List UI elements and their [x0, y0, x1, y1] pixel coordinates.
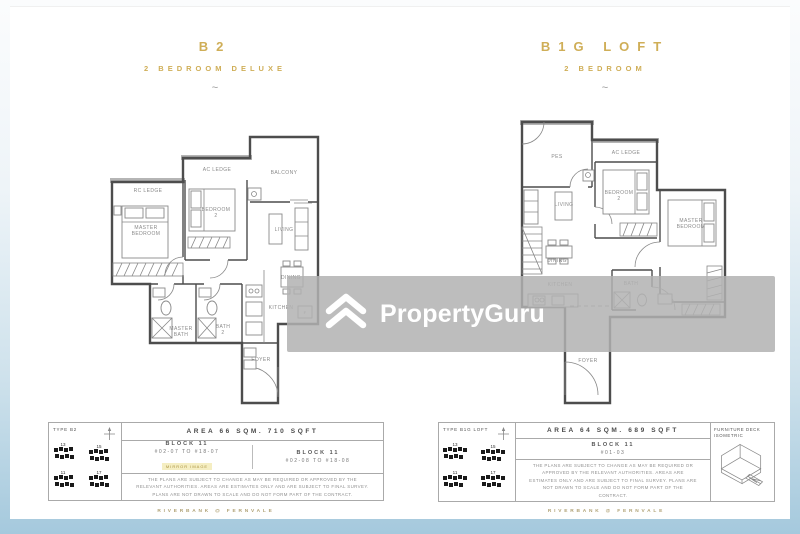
b1g-label-dining: DINING: [547, 258, 567, 264]
b2-label-bath2-2: 2: [221, 330, 224, 336]
b1g-site-number-2: 15: [490, 444, 496, 449]
furniture-deck-isometric-drawing: [714, 477, 770, 494]
b2-block-2-name: BLOCK 11: [253, 450, 383, 456]
floorplan-b1g-loft: PES AC LEDGE BEDROOM 2 LIVING MASTER BED…: [500, 112, 780, 417]
b1g-disclaimer: THE PLANS ARE SUBJECT TO CHANGE AS MAY B…: [516, 460, 710, 501]
watermark-band: PropertyGuru: [287, 276, 775, 352]
b2-label-ac-ledge: AC LEDGE: [203, 167, 232, 173]
watermark-text: PropertyGuru: [380, 300, 545, 329]
b1g-type-label: TYPE B1G LOFT: [443, 427, 488, 432]
b1g-block-1-range: #01-03: [516, 450, 710, 456]
unit-b1g-separator: ~: [430, 82, 780, 94]
b2-label-living: LIVING: [275, 227, 294, 233]
b2-siteplan-clusters: 13 15 11 17: [51, 439, 119, 502]
b1g-siteplan-cell: TYPE B1G LOFT 13 15 11: [439, 423, 516, 501]
b2-label-rc-ledge: RC LEDGE: [134, 188, 163, 194]
brochure-page: B2 2 BEDROOM DELUXE ~ B1G LOFT 2 BEDROOM…: [10, 6, 790, 519]
propertyguru-logo-icon: [323, 291, 369, 338]
b2-site-number-4: 17: [96, 470, 102, 475]
b2-block-2: BLOCK 11 #02-08 TO #18-08: [253, 450, 383, 464]
b2-info-main: AREA 66 SQM. 710 SQFT BLOCK 11 #02-07 TO…: [122, 423, 383, 500]
infobox-b1g: TYPE B1G LOFT 13 15 11: [438, 422, 775, 502]
b2-disclaimer: THE PLANS ARE SUBJECT TO CHANGE AS MAY B…: [122, 474, 383, 500]
unit-b1g-subtitle: 2 BEDROOM: [430, 64, 780, 73]
b2-site-number-1: 13: [60, 442, 66, 447]
b1g-area-label: AREA 64 SQM. 689 SQFT: [516, 423, 710, 439]
b2-label-foyer: FOYER: [251, 357, 270, 363]
unit-b2-header: B2 2 BEDROOM DELUXE ~: [40, 39, 390, 94]
unit-b2-separator: ~: [40, 82, 390, 94]
b2-area-label: AREA 66 SQM. 710 SQFT: [122, 423, 383, 441]
b2-label-masterbath-2: BATH: [174, 332, 189, 338]
b1g-block-1: BLOCK 11 #01-03: [516, 442, 710, 456]
b2-type-label: TYPE B2: [53, 427, 77, 432]
unit-b2-title: B2: [40, 39, 390, 54]
b2-block-2-range: #02-08 TO #18-08: [253, 458, 383, 464]
b1g-site-number-1: 13: [452, 442, 458, 447]
b2-mirror-image-tag: MIRROR IMAGE: [162, 463, 212, 470]
b2-site-number-2: 15: [96, 444, 102, 449]
project-name-left: RIVERBANK @ FERNVALE: [48, 509, 384, 514]
b1g-stairs: [522, 227, 542, 274]
b1g-label-bedroom2-2: 2: [617, 196, 620, 202]
unit-b2-subtitle: 2 BEDROOM DELUXE: [40, 64, 390, 73]
b2-siteplan-cell: TYPE B2 13 15 11: [49, 423, 122, 500]
b2-block-1: BLOCK 11 #02-07 TO #18-07 MIRROR IMAGE: [122, 441, 252, 473]
b2-blocks-row: BLOCK 11 #02-07 TO #18-07 MIRROR IMAGE B…: [122, 441, 383, 474]
floorplan-b2: RC LEDGE AC LEDGE BALCONY MASTER BEDROOM…: [50, 112, 320, 417]
b1g-label-pes: PES: [551, 154, 562, 160]
infobox-b2: TYPE B2 13 15 11: [48, 422, 384, 501]
b2-block-1-name: BLOCK 11: [122, 441, 252, 447]
b1g-label-master-2: BEDROOM: [677, 224, 706, 230]
b1g-label-living: LIVING: [555, 202, 574, 208]
b1g-info-main: AREA 64 SQM. 689 SQFT BLOCK 11 #01-03 TH…: [516, 423, 710, 501]
b2-label-bedroom2-2: 2: [214, 213, 217, 219]
b1g-siteplan-clusters: 13 15 11 17: [441, 439, 513, 502]
b1g-label-ac-ledge: AC LEDGE: [612, 150, 641, 156]
b1g-doors: [522, 122, 675, 395]
b2-label-balcony: BALCONY: [271, 170, 298, 176]
b1g-blocks-row: BLOCK 11 #01-03: [516, 439, 710, 459]
furniture-deck-cell: FURNITURE DECK ISOMETRIC: [710, 423, 774, 501]
b1g-label-foyer: FOYER: [578, 358, 597, 364]
b1g-site-number-4: 17: [490, 470, 496, 475]
b2-block-1-range: #02-07 TO #18-07: [122, 449, 252, 455]
b1g-site-number-3: 11: [453, 470, 458, 475]
b2-site-number-3: 11: [61, 470, 66, 475]
project-name-right: RIVERBANK @ FERNVALE: [438, 509, 775, 514]
unit-b1g-header: B1G LOFT 2 BEDROOM ~: [430, 39, 780, 94]
b1g-block-1-name: BLOCK 11: [516, 442, 710, 448]
unit-b1g-title: B1G LOFT: [430, 39, 780, 54]
b2-label-master-2: BEDROOM: [132, 231, 161, 237]
